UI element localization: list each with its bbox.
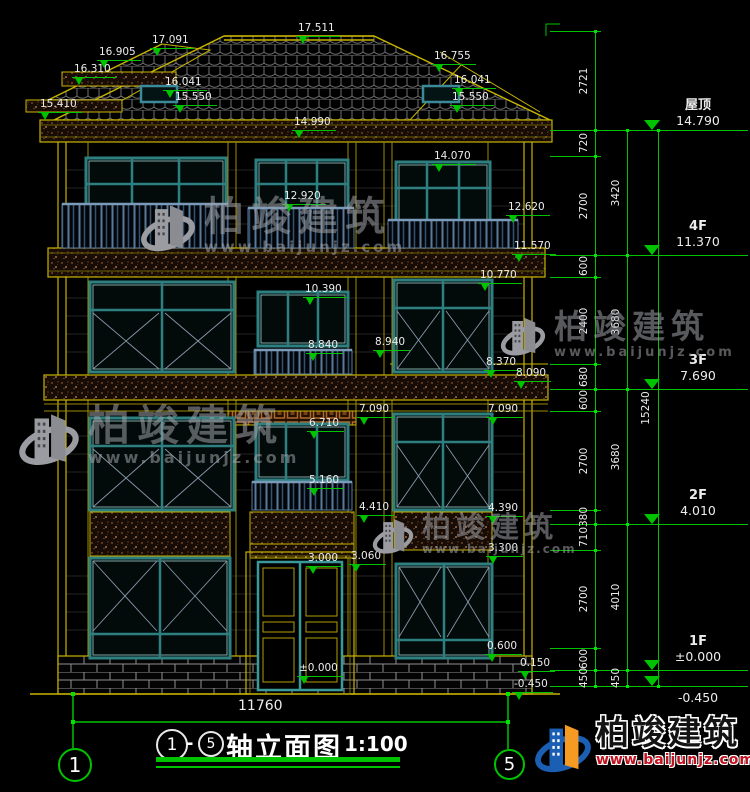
elevation-marker: 10.770 (478, 263, 522, 284)
dimension-node (626, 129, 630, 133)
elevation-value: 3.000 (306, 552, 343, 567)
elevation-value: 3.300 (486, 542, 523, 557)
dimension-text: 600 (578, 390, 590, 410)
dimension-text: 600 (578, 649, 590, 669)
level-triangle-icon (509, 216, 517, 227)
dimension-node (594, 647, 598, 651)
level-name: 3F (646, 353, 750, 368)
elevation-marker: 10.390 (303, 277, 347, 298)
elevation-marker: 15.550 (173, 85, 217, 106)
axis-bubble-1: 1 (58, 748, 92, 782)
axis-bubble-5: 5 (494, 749, 525, 780)
elevation-value: 8.840 (306, 339, 343, 354)
elevation-marker: 8.090 (514, 361, 551, 382)
dimension-text: 2400 (578, 307, 590, 334)
elevation-value: 16.755 (432, 50, 476, 65)
dimension-text: 4010 (610, 584, 622, 611)
elevation-value: 15.550 (173, 91, 217, 106)
level-line (618, 389, 748, 390)
dimension-text: 2700 (578, 586, 590, 613)
level-triangle-icon (309, 354, 317, 365)
elevation-value: 17.091 (150, 34, 194, 49)
brand-logo-icon (534, 714, 592, 776)
brand-name: 柏竣建筑 (596, 714, 750, 752)
dimension-text: 450 (578, 668, 590, 688)
level-triangle-icon (310, 489, 318, 500)
level-name: 屋顶 (646, 94, 750, 113)
elevation-marker: 12.620 (506, 195, 550, 216)
level-label: 1F±0.000 (646, 634, 750, 664)
title-scale: 1:100 (344, 732, 408, 756)
elevation-marker: 16.310 (72, 57, 116, 78)
dimension-node (594, 254, 598, 258)
dimension-node (626, 669, 630, 673)
dimension-node (626, 254, 630, 258)
level-triangle-icon (435, 65, 443, 76)
elevation-value: 14.990 (292, 116, 336, 131)
level-triangle-icon (360, 418, 368, 429)
elevation-value: ±0.000 (297, 662, 343, 677)
elevation-marker: 12.920 (282, 184, 326, 205)
elevation-value: 8.940 (373, 336, 410, 351)
elevation-marker: 14.990 (292, 110, 336, 131)
level-triangle-icon (515, 693, 523, 704)
elevation-marker: 3.060 (349, 544, 386, 565)
elevation-marker: 8.840 (306, 333, 343, 354)
elevation-marker: 7.090 (357, 397, 394, 418)
level-label: 屋顶14.790 (646, 94, 750, 128)
elevation-value: 0.150 (518, 657, 555, 672)
elevation-marker: 15.410 (38, 92, 82, 113)
elevation-marker: 11.570 (512, 234, 556, 255)
dimension-node (594, 388, 598, 392)
dimension-node (594, 276, 598, 280)
level-triangle-icon (295, 131, 303, 142)
level-line (618, 686, 748, 687)
elevation-value: 6.710 (307, 417, 344, 432)
dimension-text: 600 (578, 256, 590, 276)
level-label: -0.450 (646, 690, 750, 705)
dimension-text: 720 (578, 133, 590, 153)
level-triangle-icon (489, 557, 497, 568)
elevation-marker: 4.390 (486, 496, 523, 517)
elevation-value: 5.160 (307, 474, 344, 489)
elevation-value: 4.410 (357, 501, 394, 516)
elevation-value: -0.450 (512, 678, 553, 693)
level-value: ±0.000 (646, 649, 750, 664)
brand-block: 柏竣建筑 www.baijunjz.com (534, 714, 750, 776)
dimension-node (594, 410, 598, 414)
elevation-marker: 15.550 (450, 85, 494, 106)
dimension-line (658, 130, 659, 686)
dimension-node (594, 685, 598, 689)
cad-canvas: 17.51117.09116.90516.31016.04115.55015.4… (0, 0, 750, 792)
level-triangle-icon (310, 432, 318, 443)
level-triangle-icon (41, 113, 49, 124)
title-underline-thin (156, 766, 400, 768)
elevation-value: 10.770 (478, 269, 522, 284)
level-triangle-icon (300, 677, 308, 688)
elevation-value: 12.920 (282, 190, 326, 205)
level-triangle-icon (306, 298, 314, 309)
level-triangle-icon (481, 284, 489, 295)
level-value: 7.690 (646, 368, 750, 383)
elevation-value: 8.090 (514, 367, 551, 382)
level-triangle-icon (75, 78, 83, 89)
elevation-value: 15.550 (450, 91, 494, 106)
elevation-value: 3.060 (349, 550, 386, 565)
dimension-text: 15240 (640, 391, 652, 424)
level-triangle-icon (309, 567, 317, 578)
dimension-node (626, 685, 630, 689)
elevation-marker: -0.450 (512, 672, 553, 693)
level-value: 4.010 (646, 503, 750, 518)
level-triangle-icon (453, 106, 461, 117)
level-triangle-icon (376, 351, 384, 362)
axis-number: 5 (504, 754, 515, 775)
level-value: 14.790 (646, 113, 750, 128)
dimension-text: 3420 (610, 179, 622, 206)
dimension-text: 2721 (578, 67, 590, 94)
dimension-text: 2700 (578, 447, 590, 474)
level-triangle-icon (176, 106, 184, 117)
dimension-node (594, 129, 598, 133)
elevation-marker: 3.300 (486, 536, 523, 557)
dimension-node (594, 155, 598, 159)
dimension-text: 710 (578, 527, 590, 547)
dimension-node (594, 549, 598, 553)
elevation-value: 14.070 (432, 150, 476, 165)
level-line (618, 130, 748, 131)
elevation-value: 7.090 (486, 403, 523, 418)
title-dash: - (186, 733, 193, 754)
elevation-marker: ±0.000 (297, 656, 343, 677)
overall-dimension-label: 11760 (238, 698, 283, 714)
elevation-marker: 3.000 (306, 546, 343, 567)
elevation-marker: 5.160 (307, 468, 344, 489)
elevation-marker: 0.600 (485, 634, 522, 655)
brand-url: www.baijunjz.com (596, 752, 750, 768)
title-axis-from: 1 (167, 735, 178, 755)
level-label: 3F7.690 (646, 353, 750, 383)
level-triangle-icon (299, 37, 307, 48)
level-triangle-icon (435, 165, 443, 176)
elevation-value: 10.390 (303, 283, 347, 298)
level-triangle-icon (644, 676, 660, 686)
elevation-marker: 17.091 (150, 28, 194, 49)
annotation-layer: 17.51117.09116.90516.31016.04115.55015.4… (0, 0, 750, 792)
dimension-node (626, 523, 630, 527)
elevation-value: 15.410 (38, 98, 82, 113)
title-axis-to: 5 (207, 736, 216, 752)
axis-number: 1 (69, 753, 82, 777)
level-value: -0.450 (646, 690, 750, 705)
dimension-text: 2700 (578, 192, 590, 219)
level-triangle-icon (352, 565, 360, 576)
level-value: 11.370 (646, 234, 750, 249)
elevation-value: 11.570 (512, 240, 556, 255)
elevation-marker: 8.940 (373, 330, 410, 351)
level-label: 2F4.010 (646, 488, 750, 518)
dimension-node (594, 669, 598, 673)
elevation-marker: 6.710 (307, 411, 344, 432)
dimension-node (594, 509, 598, 513)
dimension-text: 680 (578, 366, 590, 386)
elevation-marker: 16.755 (432, 44, 476, 65)
level-name: 4F (646, 219, 750, 234)
level-triangle-icon (153, 49, 161, 60)
elevation-value: 17.511 (296, 22, 340, 37)
level-triangle-icon (489, 517, 497, 528)
title-underline-thick (156, 757, 400, 762)
elevation-value: 12.620 (506, 201, 550, 216)
dimension-node (594, 363, 598, 367)
elevation-marker: 4.410 (357, 495, 394, 516)
dimension-text: 380 (578, 507, 590, 527)
level-line (618, 524, 748, 525)
elevation-value: 4.390 (486, 502, 523, 517)
dimension-node (626, 388, 630, 392)
level-name: 2F (646, 488, 750, 503)
elevation-marker: 17.511 (296, 16, 340, 37)
level-triangle-icon (360, 516, 368, 527)
level-triangle-icon (285, 205, 293, 216)
level-triangle-icon (488, 655, 496, 666)
level-line (618, 670, 748, 671)
level-line (618, 255, 748, 256)
elevation-marker: 0.150 (518, 651, 555, 672)
title-axis-to-bubble: 5 (198, 731, 224, 757)
dimension-node (594, 30, 598, 34)
elevation-marker: 14.070 (432, 144, 476, 165)
level-name: 1F (646, 634, 750, 649)
elevation-value: 7.090 (357, 403, 394, 418)
level-triangle-icon (487, 371, 495, 382)
dimension-text: 3680 (610, 309, 622, 336)
elevation-marker: 7.090 (486, 397, 523, 418)
dimension-node (594, 523, 598, 527)
dimension-line (627, 130, 628, 686)
level-triangle-icon (517, 382, 525, 393)
level-triangle-icon (489, 418, 497, 429)
elevation-value: 0.600 (485, 640, 522, 655)
elevation-value: 16.310 (72, 63, 116, 78)
dimension-text: 450 (610, 668, 622, 688)
dimension-text: 3680 (610, 443, 622, 470)
level-label: 4F11.370 (646, 219, 750, 249)
